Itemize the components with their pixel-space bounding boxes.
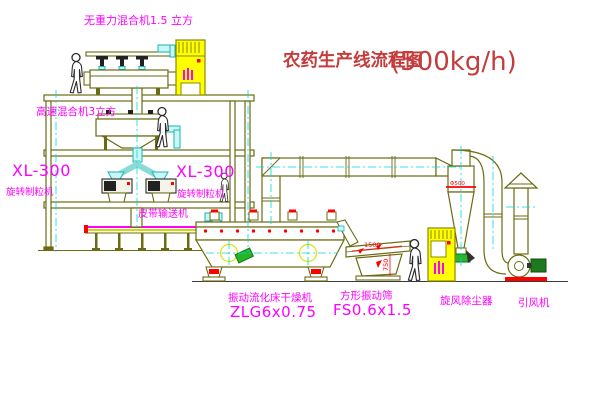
- control-cabinet: [176, 40, 205, 95]
- fan-base: [505, 277, 547, 281]
- label-high-speed-mixer: 高速混合机3立方: [36, 105, 116, 118]
- granulator-right: [146, 172, 176, 202]
- label-cyclone: 旋风除尘器: [440, 294, 493, 307]
- label-belt-conveyor: 皮带输送机: [138, 207, 188, 220]
- label-gravity-mixer: 无重力混合机1.5 立方: [84, 13, 193, 27]
- exhaust-stack: [505, 173, 537, 254]
- cad-flow-diagram: 农药生产线流程图 (500kg/h) 无重力混合机1.5 立方 高速混合机3立方…: [0, 0, 600, 403]
- label-granulator-center-model: XL-300: [176, 162, 235, 181]
- gravity-mixer: [84, 45, 178, 95]
- diagram-canvas: 农药生产线流程图 (500kg/h) 无重力混合机1.5 立方 高速混合机3立方…: [0, 0, 600, 403]
- worker-figure: [156, 108, 168, 147]
- dryer-foot: [203, 267, 327, 281]
- granulator-left: [102, 172, 132, 202]
- induced-draft-fan: [505, 255, 547, 281]
- dim-screen-height: 750: [382, 259, 390, 271]
- worker-figure: [408, 240, 421, 281]
- label-granulator-center-name: 旋转制粒机: [177, 188, 225, 200]
- vibrating-screen: [337, 220, 410, 280]
- label-dryer-model: ZLG6x0.75: [230, 303, 317, 321]
- indicator-dot-icon: [197, 59, 201, 63]
- dim-screen-length: 1500: [364, 241, 381, 249]
- label-granulator-left-name: 旋转制粒机: [6, 186, 54, 198]
- label-screen-model: FS0.6x1.5: [333, 301, 412, 319]
- page-title-capacity: (500kg/h): [390, 47, 517, 77]
- control-cabinet-2: [428, 228, 455, 281]
- fan-motor: [531, 259, 546, 272]
- label-granulator-left-model: XL-300: [12, 161, 71, 180]
- label-fan: 引风机: [518, 296, 550, 309]
- indicator-dot-icon: [447, 241, 451, 245]
- worker-figure: [70, 54, 82, 93]
- dim-cyclone-band: Φ500: [450, 181, 465, 187]
